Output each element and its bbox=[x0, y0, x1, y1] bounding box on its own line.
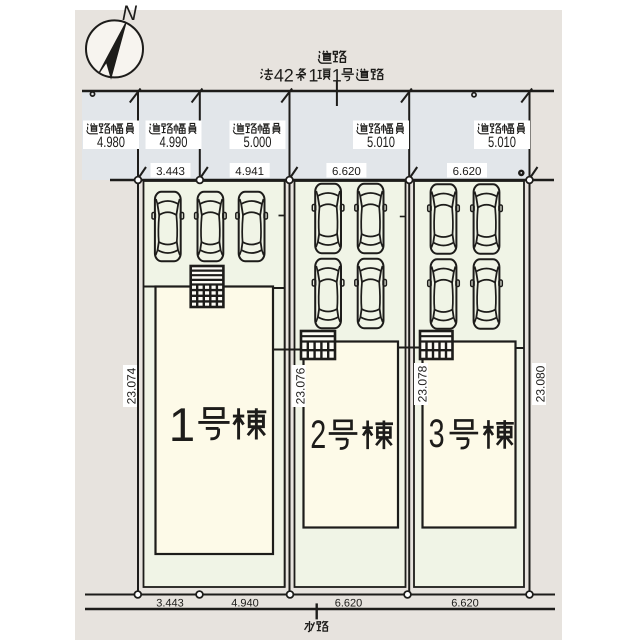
svg-text:3: 3 bbox=[429, 412, 445, 456]
svg-text:4.940: 4.940 bbox=[231, 597, 259, 609]
svg-text:23.076: 23.076 bbox=[293, 367, 307, 404]
svg-text:3.443: 3.443 bbox=[156, 597, 184, 609]
svg-text:5.010: 5.010 bbox=[488, 134, 516, 151]
svg-text:6.620: 6.620 bbox=[451, 597, 479, 609]
svg-text:6.620: 6.620 bbox=[332, 166, 361, 178]
svg-text:3.443: 3.443 bbox=[156, 166, 185, 178]
svg-text:5.000: 5.000 bbox=[244, 134, 272, 151]
svg-text:2: 2 bbox=[310, 413, 326, 457]
svg-text:23.080: 23.080 bbox=[534, 365, 548, 402]
svg-text:1: 1 bbox=[308, 65, 318, 85]
svg-text:6.620: 6.620 bbox=[335, 597, 363, 609]
svg-text:2: 2 bbox=[284, 65, 294, 85]
svg-text:1: 1 bbox=[169, 399, 195, 452]
svg-text:N: N bbox=[122, 2, 138, 25]
svg-text:4.990: 4.990 bbox=[160, 134, 188, 151]
svg-text:4.980: 4.980 bbox=[97, 134, 125, 151]
svg-text:4.941: 4.941 bbox=[235, 166, 264, 178]
svg-text:1: 1 bbox=[332, 65, 342, 85]
svg-text:6.620: 6.620 bbox=[453, 166, 482, 178]
svg-text:4: 4 bbox=[274, 65, 284, 85]
svg-text:23.078: 23.078 bbox=[416, 365, 430, 402]
svg-text:23.074: 23.074 bbox=[125, 367, 139, 404]
svg-text:5.010: 5.010 bbox=[367, 134, 395, 151]
